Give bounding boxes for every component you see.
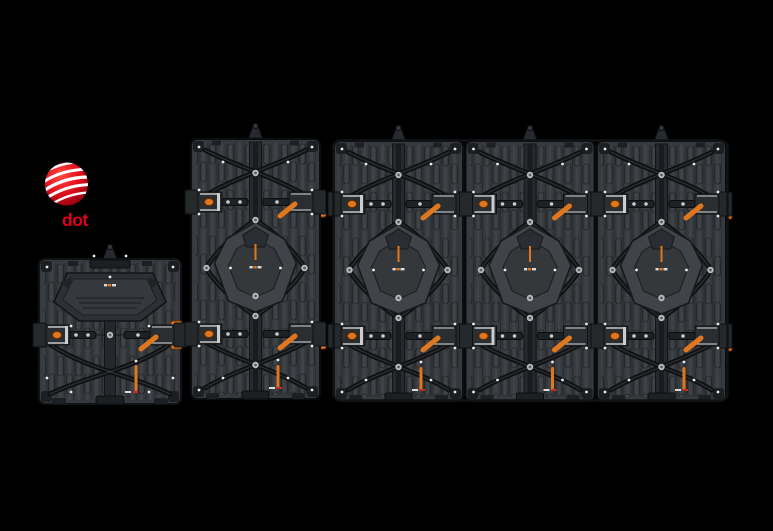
scene-canvas: dot: [0, 0, 773, 531]
cabinet-column: [328, 141, 469, 401]
cabinet-large: [328, 125, 732, 401]
reddot-award-logo: dot: [33, 156, 99, 230]
reddot-sphere-icon: [33, 156, 99, 210]
cabinet-large-columns: [328, 141, 732, 401]
cabinet-small: [33, 244, 187, 404]
cabinet-column: [591, 141, 732, 401]
cabinet-medium: [185, 123, 326, 399]
reddot-label: dot: [62, 210, 88, 230]
cabinet-medium-columns: [185, 139, 326, 399]
product-showcase: dot: [0, 0, 773, 531]
cabinet-column: [185, 139, 326, 399]
cabinet-column: [460, 141, 601, 401]
